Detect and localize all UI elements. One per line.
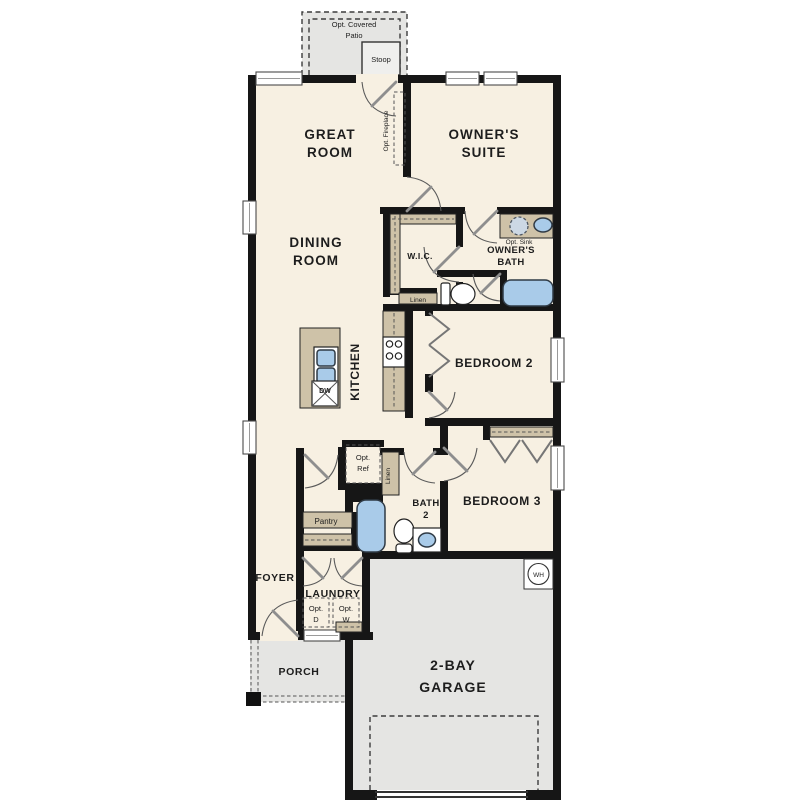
room-label-pantry: Pantry — [314, 517, 337, 526]
room-label-great-room: GREAT — [304, 127, 355, 142]
room-label-kitchen: KITCHEN — [348, 343, 362, 401]
owners-sink — [534, 218, 552, 232]
room-label-dining-room: DINING — [289, 235, 342, 250]
room-label-bedroom3: BEDROOM 3 — [463, 494, 541, 508]
room-label-dining-room: ROOM — [293, 253, 339, 268]
window — [243, 421, 256, 454]
label-opt-covered-patio: Opt. Covered — [332, 20, 377, 29]
optional-sink — [510, 217, 528, 235]
window — [304, 630, 340, 641]
label-opt-ref: Opt. — [356, 453, 370, 462]
room-label-owners-bath: BATH — [497, 257, 524, 268]
label-linen-owners: Linen — [410, 297, 426, 304]
window — [243, 201, 256, 234]
label-opt-sink: Opt. Sink — [506, 239, 533, 246]
window — [484, 72, 517, 85]
room-label-great-room: ROOM — [307, 145, 353, 160]
label-opt-covered-patio: Patio — [345, 31, 362, 40]
floor-plan-page: GREAT ROOM OWNER'S SUITE DINING ROOM OWN… — [0, 0, 810, 810]
label-stoop: Stoop — [371, 55, 391, 64]
room-label-foyer: FOYER — [255, 572, 294, 584]
label-linen-bath2: Linen — [385, 468, 392, 484]
room-label-garage: GARAGE — [419, 679, 486, 695]
garage-floor — [353, 559, 553, 790]
room-label-wic: W.I.C. — [407, 251, 433, 261]
room-label-owners-suite: OWNER'S — [449, 127, 520, 142]
owners-bathtub — [503, 280, 553, 306]
label-opt-ref: Ref — [357, 464, 370, 473]
window — [551, 446, 564, 490]
window — [551, 338, 564, 382]
label-opt-fireplace: Opt. Fireplace — [383, 110, 390, 151]
label-opt-dryer: Opt. — [309, 604, 323, 613]
bath2-toilet — [394, 519, 414, 553]
bath2-sink — [413, 528, 441, 552]
range — [383, 337, 405, 367]
window — [446, 72, 479, 85]
floor-plan: GREAT ROOM OWNER'S SUITE DINING ROOM OWN… — [0, 0, 810, 810]
bedroom3-closet-shelf — [490, 427, 553, 437]
room-label-laundry: LAUNDRY — [305, 588, 360, 600]
room-label-owners-suite: SUITE — [462, 145, 507, 160]
label-dishwasher: DW — [319, 388, 331, 395]
label-opt-dryer: D — [313, 615, 319, 624]
label-water-heater: WH — [533, 572, 544, 579]
porch-post — [246, 692, 261, 706]
front-door-opening — [260, 631, 298, 641]
room-label-bedroom2: BEDROOM 2 — [455, 356, 533, 370]
owners-toilet — [441, 283, 475, 305]
kitchen-sink — [314, 347, 338, 385]
room-label-porch: PORCH — [279, 666, 320, 678]
window — [256, 72, 302, 85]
room-label-bath2: 2 — [423, 510, 429, 521]
label-opt-washer: W — [342, 615, 350, 624]
label-opt-washer: Opt. — [339, 604, 353, 613]
room-label-garage: 2-BAY — [430, 657, 476, 673]
room-label-owners-bath: OWNER'S — [487, 245, 535, 256]
room-label-bath2: BATH — [412, 498, 439, 509]
bath2-bathtub — [357, 500, 385, 552]
